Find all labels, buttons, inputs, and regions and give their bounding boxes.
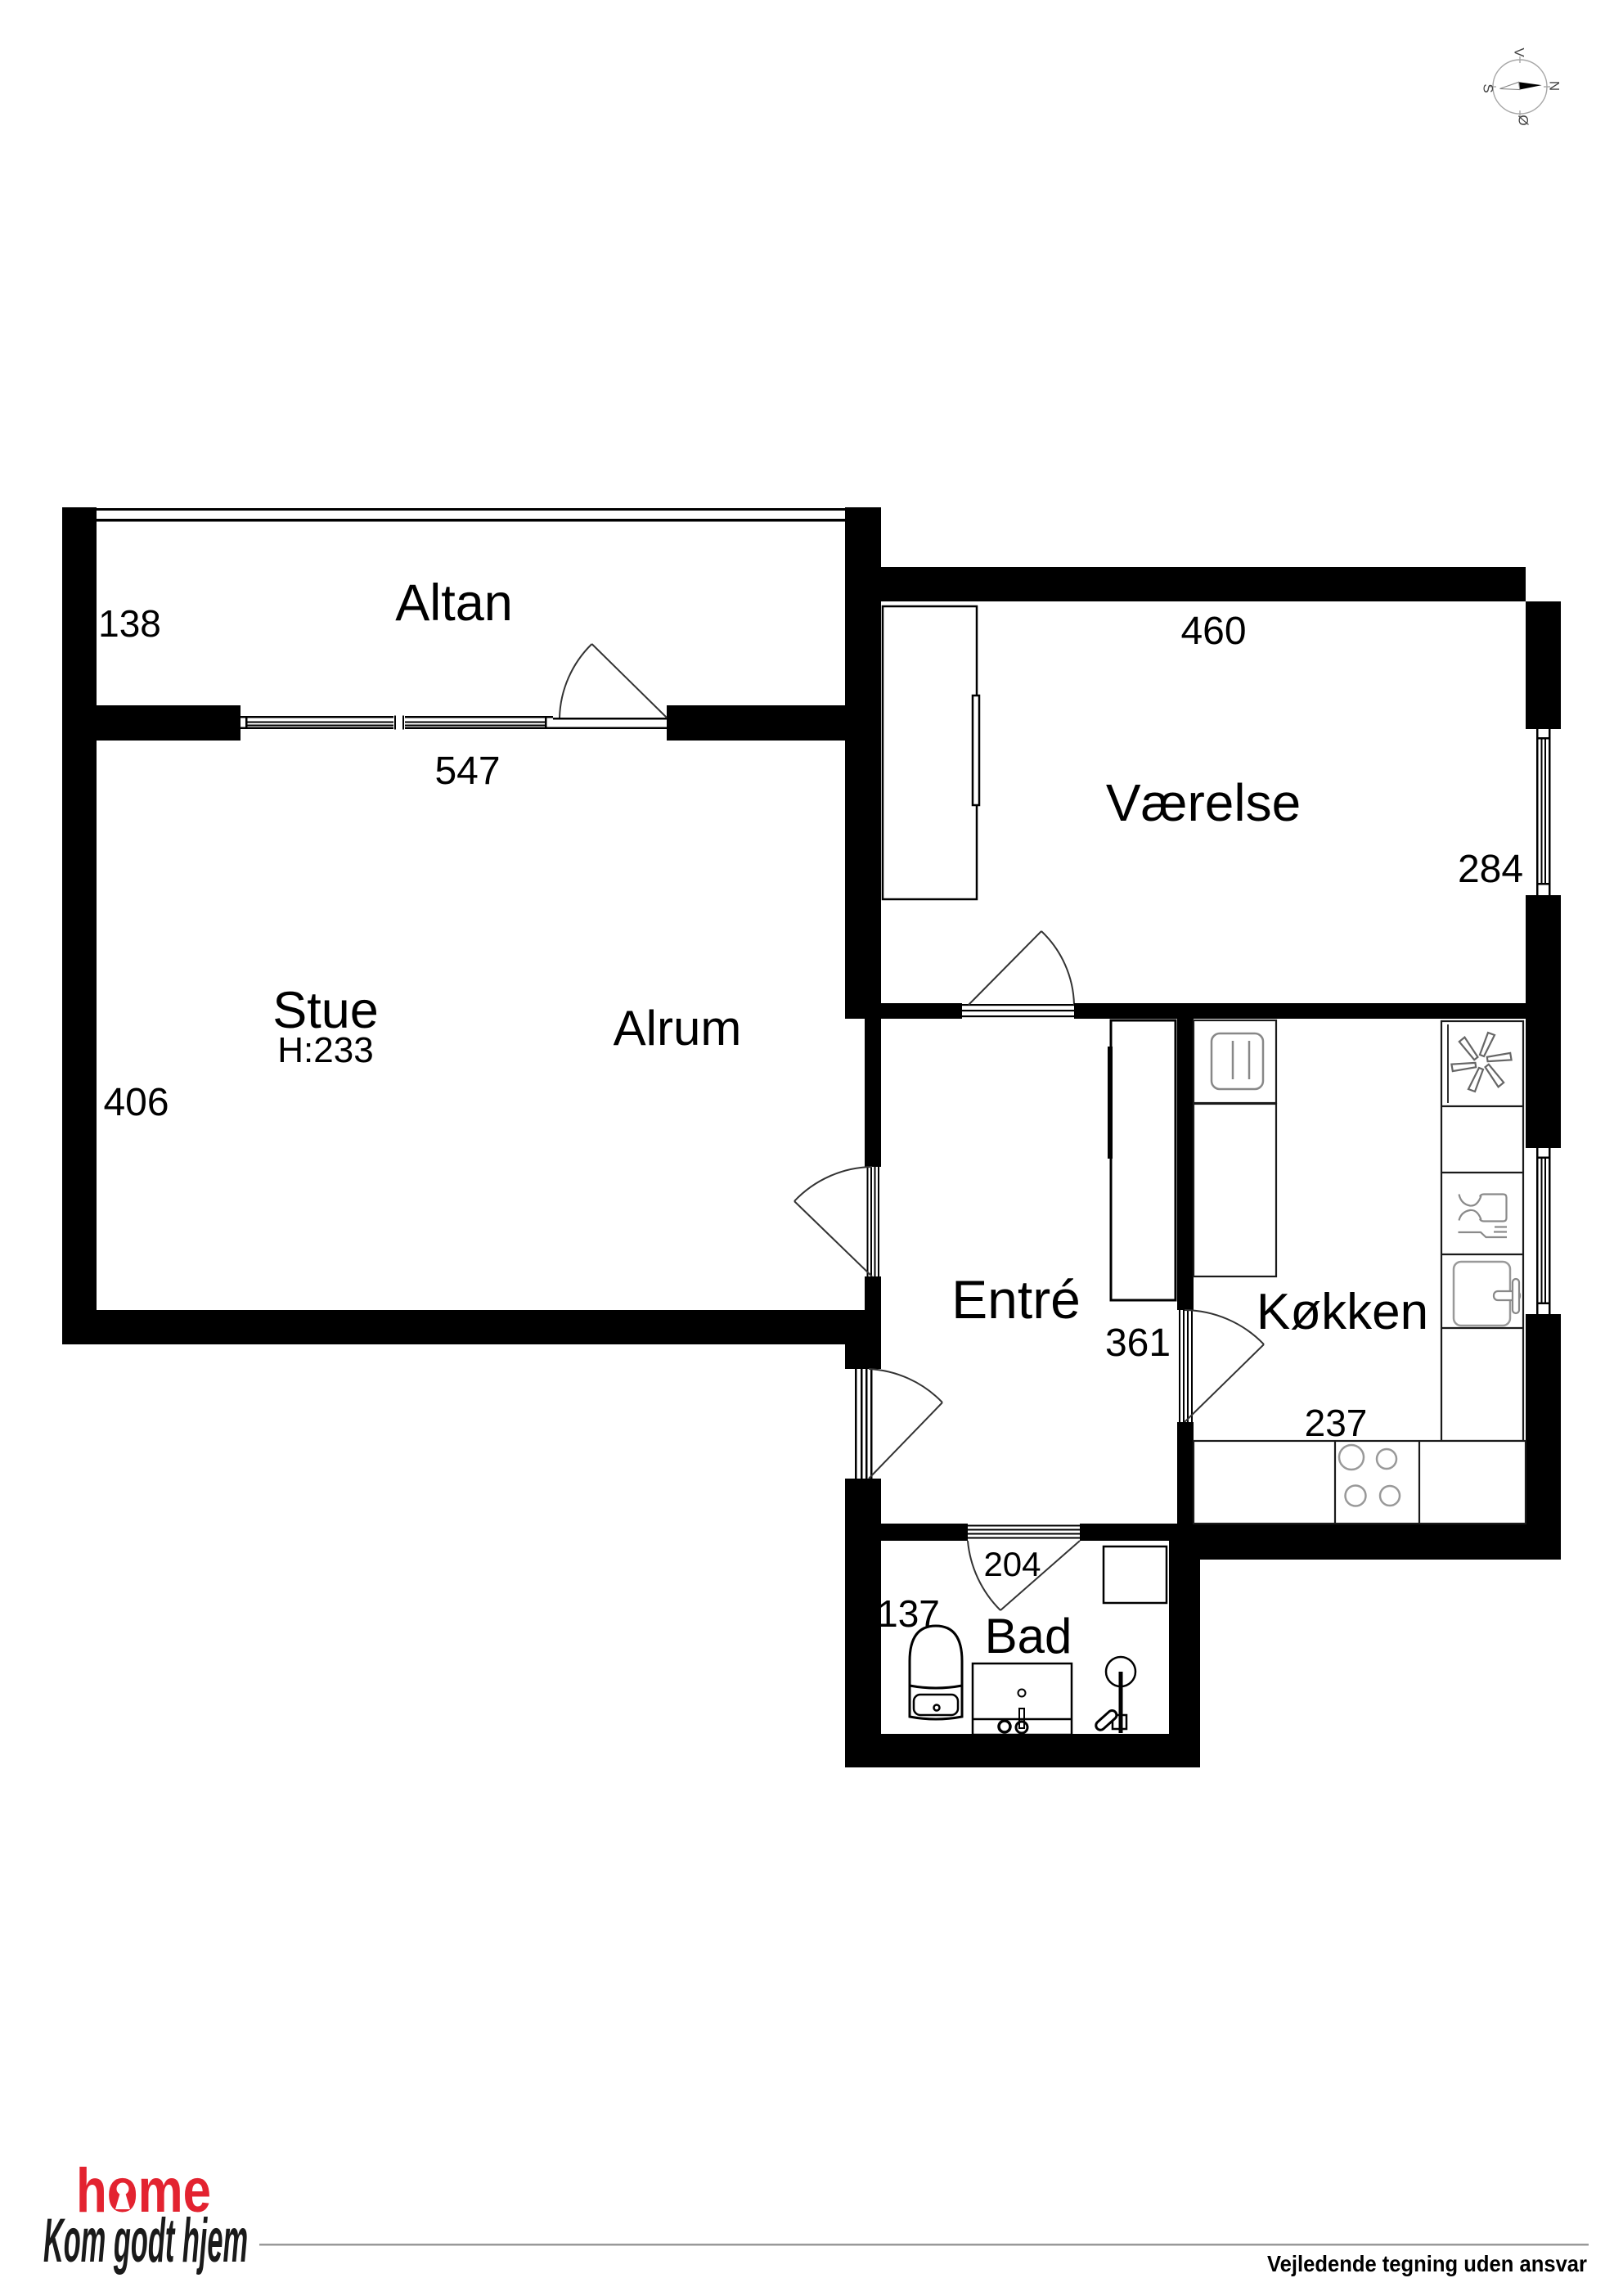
- svg-text:204: 204: [983, 1545, 1041, 1583]
- svg-text:Vejledende tegning uden ansvar: Vejledende tegning uden ansvar: [1267, 2251, 1587, 2276]
- svg-text:Værelse: Værelse: [1106, 773, 1301, 832]
- svg-text:Kom godt hjem: Kom godt hjem: [43, 2206, 248, 2276]
- svg-text:361: 361: [1105, 1321, 1171, 1365]
- svg-text:Ø: Ø: [1516, 115, 1531, 125]
- svg-text:Køkken: Køkken: [1257, 1284, 1428, 1340]
- svg-text:460: 460: [1180, 610, 1246, 653]
- svg-text:Entré: Entré: [951, 1269, 1081, 1330]
- svg-text:Altan: Altan: [395, 574, 513, 632]
- svg-text:V: V: [1512, 47, 1527, 57]
- svg-text:406: 406: [103, 1081, 169, 1124]
- svg-text:N: N: [1547, 81, 1562, 91]
- svg-text:137: 137: [877, 1592, 940, 1635]
- svg-text:237: 237: [1305, 1402, 1368, 1444]
- svg-text:284: 284: [1458, 848, 1523, 891]
- svg-text:Bad: Bad: [985, 1609, 1072, 1663]
- svg-text:S: S: [1481, 83, 1496, 92]
- svg-text:547: 547: [434, 750, 500, 793]
- svg-text:Alrum: Alrum: [614, 1001, 742, 1056]
- svg-text:H:233: H:233: [277, 1030, 373, 1070]
- svg-text:138: 138: [98, 602, 161, 645]
